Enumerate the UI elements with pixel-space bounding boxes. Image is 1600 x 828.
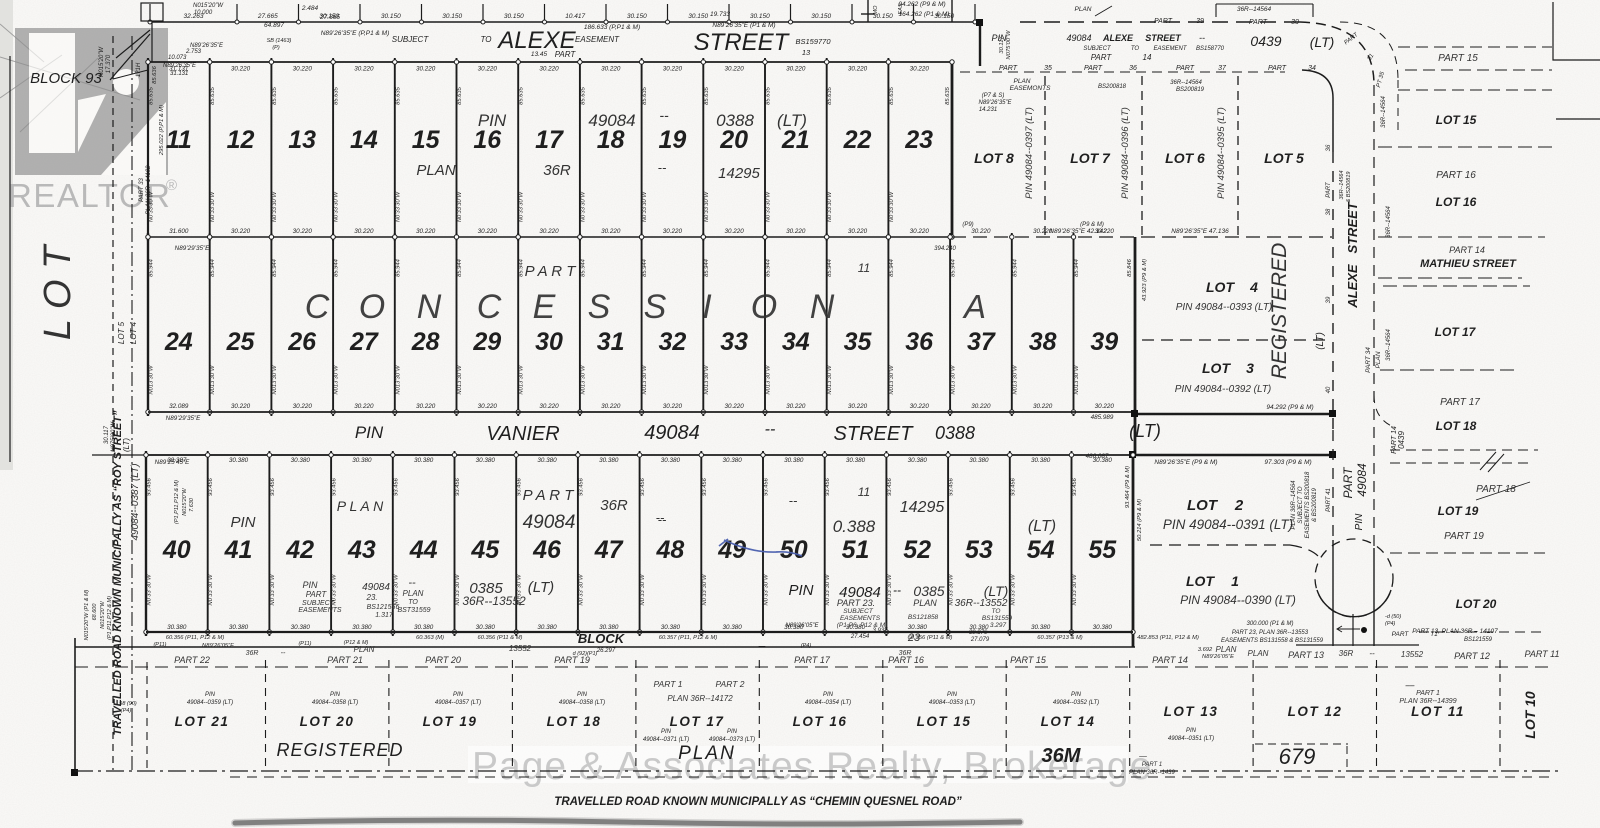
svg-text:11: 11	[166, 126, 192, 154]
svg-text:N89’29’35”E: N89’29’35”E	[175, 245, 210, 252]
svg-text:49084: 49084	[523, 512, 576, 533]
svg-text:LOT 5: LOT 5	[117, 321, 126, 344]
svg-text:60.356 (P11, P12 & M): 60.356 (P11, P12 & M)	[166, 635, 225, 641]
svg-text:20: 20	[719, 126, 748, 154]
svg-text:LOT 18: LOT 18	[547, 714, 602, 729]
svg-text:93.456: 93.456	[208, 477, 214, 496]
svg-text:EASEMONTS: EASEMONTS	[1010, 85, 1051, 92]
svg-text:30.220: 30.220	[231, 403, 251, 410]
svg-text:85.944: 85.944	[395, 259, 401, 277]
svg-text:LOT: LOT	[1206, 279, 1235, 295]
svg-text:30.150: 30.150	[750, 13, 770, 20]
svg-text:45: 45	[470, 536, 500, 564]
svg-text:37: 37	[967, 328, 996, 356]
svg-text:P A R T: P A R T	[523, 487, 576, 504]
svg-text:N0’33’30”W: N0’33’30”W	[457, 191, 463, 222]
svg-text:30.380: 30.380	[1031, 624, 1051, 631]
svg-text:PART 33: PART 33	[139, 177, 145, 201]
svg-text:N013’30”W: N013’30”W	[766, 365, 772, 395]
svg-text:64.897: 64.897	[264, 22, 284, 29]
svg-text:N013’30”W: N013’30”W	[1012, 365, 1018, 395]
svg-text:30.380: 30.380	[722, 457, 742, 464]
svg-text:30.380: 30.380	[969, 457, 989, 464]
svg-text:30.220: 30.220	[539, 403, 559, 410]
svg-text:30.380: 30.380	[1093, 624, 1113, 631]
svg-text:3: 3	[1246, 360, 1254, 376]
svg-text:LOT 4: LOT 4	[129, 321, 138, 344]
svg-text:N015’20”W: N015’20”W	[182, 487, 188, 515]
svg-text:30.220: 30.220	[971, 403, 991, 410]
svg-text:36R: 36R	[600, 497, 628, 514]
svg-text:PART 14: PART 14	[1449, 245, 1485, 255]
svg-text:PART: PART	[1341, 466, 1355, 499]
svg-text:N013’30”W: N013’30”W	[457, 365, 463, 395]
svg-text:30.220: 30.220	[601, 66, 621, 73]
svg-text:44: 44	[409, 536, 438, 564]
svg-text:10.417: 10.417	[565, 13, 585, 20]
svg-text:30.220: 30.220	[539, 228, 559, 235]
svg-text:PIN: PIN	[788, 582, 813, 599]
svg-text:30.150: 30.150	[627, 13, 647, 20]
svg-text:PLAN: PLAN	[1216, 645, 1237, 654]
svg-text:PART 11: PART 11	[1524, 649, 1559, 659]
svg-text:N0’33”30”W: N0’33”30”W	[1072, 574, 1078, 605]
svg-text:30.380: 30.380	[167, 624, 187, 631]
svg-text:––: ––	[758, 644, 766, 650]
svg-text:PART: PART	[306, 590, 328, 599]
svg-text:PART: PART	[1268, 65, 1287, 72]
svg-text:93.456: 93.456	[455, 477, 461, 496]
svg-text:PART: PART	[555, 50, 577, 59]
svg-text:PLAN: PLAN	[1075, 6, 1092, 13]
svg-text:36: 36	[1326, 144, 1332, 151]
svg-text:27: 27	[349, 328, 379, 356]
svg-text:PLAN 36R--14102: PLAN 36R--14102	[146, 165, 152, 215]
svg-text:N013’30”W: N013’30”W	[272, 365, 278, 395]
svg-text:36R: 36R	[899, 650, 912, 657]
svg-text:LOT 16: LOT 16	[793, 714, 848, 729]
svg-text:0385: 0385	[913, 583, 944, 599]
svg-text:BS121559: BS121559	[1464, 637, 1493, 643]
svg-text:30.220: 30.220	[478, 403, 498, 410]
svg-text:N0’33”30”W: N0’33”30”W	[640, 574, 646, 605]
svg-text:STREET: STREET	[1145, 33, 1182, 43]
svg-text:10.073: 10.073	[168, 55, 187, 61]
svg-text:N: N	[417, 288, 442, 326]
svg-text:18: 18	[597, 126, 625, 154]
svg-text:30.220: 30.220	[539, 66, 559, 73]
svg-text:27.665: 27.665	[319, 14, 340, 21]
svg-text:S: S	[588, 288, 611, 326]
svg-text:LOT 11: LOT 11	[1411, 704, 1465, 719]
svg-text:34: 34	[782, 328, 810, 356]
svg-text:30.220: 30.220	[910, 228, 930, 235]
svg-text:N013’30”W: N013’30”W	[827, 365, 833, 395]
svg-text:N013’30”W: N013’30”W	[149, 365, 155, 395]
svg-text:PIN: PIN	[727, 729, 738, 735]
svg-text:13: 13	[802, 48, 811, 57]
svg-text:30.220: 30.220	[416, 66, 436, 73]
svg-text:394.240: 394.240	[934, 246, 956, 252]
svg-text:PART 20: PART 20	[425, 655, 461, 665]
svg-text:LOT 5: LOT 5	[1264, 150, 1304, 166]
svg-text:36R--14564: 36R--14564	[1386, 205, 1392, 237]
svg-text:49084--0354 (LT): 49084--0354 (LT)	[805, 700, 851, 706]
svg-text:49084--0387 (LT): 49084--0387 (LT)	[130, 463, 141, 540]
svg-text:85.944: 85.944	[457, 259, 463, 277]
svg-text:43.923 (P9 & M): 43.923 (P9 & M)	[1142, 259, 1148, 301]
svg-text:TO: TO	[1131, 46, 1140, 52]
svg-text:LOT 13: LOT 13	[1164, 704, 1219, 719]
svg-text:PART 15: PART 15	[1010, 655, 1047, 665]
svg-text:30.220: 30.220	[601, 403, 621, 410]
svg-text:N075’20”W: N075’20”W	[111, 421, 117, 452]
svg-text:85.944: 85.944	[766, 259, 772, 277]
svg-text:LOT: LOT	[1202, 360, 1231, 376]
svg-text:EASEMENT: EASEMENT	[1153, 46, 1187, 52]
svg-text:11: 11	[858, 261, 870, 275]
svg-text:PIN: PIN	[230, 514, 255, 531]
svg-text:--: --	[789, 493, 798, 508]
svg-text:--: --	[656, 510, 665, 525]
svg-text:30.380: 30.380	[537, 624, 557, 631]
svg-text:--: --	[281, 650, 286, 657]
svg-text:N0’33”30”W: N0’33”30”W	[270, 574, 276, 605]
svg-text:(P11): (P11)	[153, 642, 166, 648]
svg-text:(LT): (LT)	[1129, 421, 1161, 441]
svg-text:I: I	[702, 288, 712, 326]
svg-text:19: 19	[658, 126, 686, 154]
svg-text:30.220: 30.220	[231, 228, 251, 235]
svg-text:N89’26’35”E 47.136: N89’26’35”E 47.136	[1171, 228, 1229, 235]
svg-text:VANIER: VANIER	[486, 423, 559, 445]
svg-text:36R--14564: 36R--14564	[1386, 328, 1392, 360]
svg-text:30.387: 30.387	[167, 457, 187, 464]
svg-text:36R--14564: 36R--14564	[1170, 80, 1202, 86]
svg-text:30.117: 30.117	[104, 425, 110, 444]
svg-text:30.150: 30.150	[811, 13, 831, 20]
svg-text:P L A N: P L A N	[337, 498, 384, 514]
svg-text:PART 23.: PART 23.	[837, 598, 875, 608]
svg-text:30.150: 30.150	[442, 13, 462, 20]
svg-text:(LT): (LT)	[1028, 518, 1056, 535]
svg-text:21: 21	[781, 126, 810, 154]
svg-text:BS131559: BS131559	[982, 615, 1013, 622]
svg-text:30.380: 30.380	[599, 457, 619, 464]
svg-text:2.753: 2.753	[185, 49, 202, 55]
svg-text:30.380: 30.380	[229, 624, 249, 631]
svg-text:14295: 14295	[900, 499, 945, 516]
svg-text:32.089: 32.089	[169, 403, 189, 410]
svg-text:LOT 19: LOT 19	[423, 714, 478, 729]
svg-text:39: 39	[1326, 296, 1332, 303]
svg-text:PLAN 36R--14399: PLAN 36R--14399	[1399, 698, 1456, 705]
svg-text:30.220: 30.220	[786, 403, 806, 410]
svg-text:N0’33’30”W: N0’33’30”W	[889, 191, 895, 222]
svg-text:EASEMENT: EASEMENT	[575, 35, 620, 44]
svg-text:30.380: 30.380	[476, 457, 496, 464]
svg-text:PIN: PIN	[302, 580, 318, 590]
svg-text:1?1H: 1?1H	[136, 62, 142, 77]
svg-text:49084: 49084	[644, 422, 700, 444]
svg-text:30.220: 30.220	[910, 66, 930, 73]
svg-text:30.380: 30.380	[908, 457, 928, 464]
svg-text:85.944: 85.944	[1074, 259, 1080, 277]
svg-text:30.380: 30.380	[537, 457, 557, 464]
svg-text:30.380: 30.380	[352, 457, 372, 464]
svg-text:30.220: 30.220	[354, 403, 374, 410]
svg-text:––: ––	[1138, 753, 1147, 760]
svg-text:PIN 49084--0393 (LT): PIN 49084--0393 (LT)	[1176, 302, 1273, 313]
svg-text:(LT): (LT)	[122, 438, 131, 452]
svg-text:S: S	[644, 288, 667, 326]
svg-text:PIN: PIN	[355, 423, 384, 442]
svg-text:PART: PART	[1154, 18, 1173, 25]
svg-text:30.220: 30.220	[478, 228, 498, 235]
svg-text:39: 39	[1196, 18, 1204, 25]
svg-text:PART 14: PART 14	[1152, 655, 1188, 665]
svg-text:30.220: 30.220	[724, 66, 744, 73]
svg-text:SUBJECT: SUBJECT	[302, 600, 335, 607]
svg-text:4: 4	[1249, 279, 1258, 295]
svg-text:85.944: 85.944	[889, 259, 895, 277]
svg-text:30.380: 30.380	[661, 624, 681, 631]
svg-text:30.380: 30.380	[476, 624, 496, 631]
svg-text:41: 41	[224, 536, 253, 564]
svg-text:30.380: 30.380	[414, 624, 434, 631]
svg-text:93.456: 93.456	[949, 477, 955, 496]
svg-text:PART 23, PLAN 36R--13553: PART 23, PLAN 36R--13553	[1232, 630, 1309, 636]
svg-text:PLAN: PLAN	[403, 589, 424, 598]
svg-text:300.000 (P1 & M): 300.000 (P1 & M)	[1246, 621, 1293, 627]
svg-text:PLAN: PLAN	[913, 598, 937, 608]
svg-text:N0’33’30”W: N0’33’30”W	[272, 191, 278, 222]
svg-text:679: 679	[1279, 744, 1316, 769]
svg-text:30.220: 30.220	[663, 403, 683, 410]
svg-text:49: 49	[717, 536, 746, 564]
svg-text:30.220: 30.220	[1033, 403, 1053, 410]
svg-text:28: 28	[411, 328, 440, 356]
svg-text:24: 24	[164, 328, 193, 356]
svg-text:PIN 49084--0391 (LT): PIN 49084--0391 (LT)	[1163, 517, 1293, 532]
svg-text:SB (1463): SB (1463)	[267, 38, 292, 44]
svg-text:93.456: 93.456	[1072, 477, 1078, 496]
svg-text:--: --	[658, 160, 667, 175]
svg-text:N0’33’30”W: N0’33’30”W	[519, 191, 525, 222]
svg-text:TRAVELLED ROAD KNOWN MUNIC: TRAVELLED ROAD KNOWN MUNICIPALLY AS “CHE…	[554, 796, 962, 808]
svg-text:85.944: 85.944	[334, 259, 340, 277]
svg-text:12: 12	[227, 126, 255, 154]
svg-text:49084: 49084	[1355, 463, 1369, 497]
svg-text:PIN: PIN	[661, 729, 672, 735]
svg-text:N0’33”30”W: N0’33”30”W	[578, 574, 584, 605]
svg-text:--: --	[765, 421, 776, 438]
svg-text:PART 13, PLAN 36R – 1410: PART 13, PLAN 36R – 14107	[1412, 628, 1498, 635]
svg-text:36: 36	[1129, 65, 1137, 72]
svg-text:PART 21: PART 21	[327, 655, 363, 665]
svg-text:PART 1: PART 1	[1416, 690, 1440, 697]
svg-text:N0’33’30”W: N0’33’30”W	[580, 191, 586, 222]
svg-text:93.456: 93.456	[393, 477, 399, 496]
svg-text:O: O	[751, 288, 777, 326]
svg-text:36R: 36R	[246, 650, 259, 657]
svg-text:L O T: L O T	[37, 243, 79, 340]
svg-text:93.456: 93.456	[825, 477, 831, 496]
svg-text:93.456: 93.456	[578, 477, 584, 496]
svg-text:93.456: 93.456	[270, 477, 276, 496]
svg-text:N89’26’35”E (P,P1 & M): N89’26’35”E (P,P1 & M)	[321, 30, 390, 37]
svg-text:30.220: 30.220	[354, 228, 374, 235]
svg-text:30.380: 30.380	[599, 624, 619, 631]
svg-text:(P7 & S): (P7 & S)	[982, 93, 1005, 99]
svg-text:85.944: 85.944	[642, 259, 648, 277]
svg-text:N0’33”30”W: N0’33”30”W	[455, 574, 461, 605]
svg-text:PART 13: PART 13	[1288, 650, 1324, 660]
svg-text:LOT 20: LOT 20	[300, 714, 355, 729]
svg-text:30.150: 30.150	[688, 13, 708, 20]
svg-text:BS200818: BS200818	[1098, 84, 1127, 90]
svg-text:N0’33’30”W: N0’33’30”W	[642, 191, 648, 222]
svg-text:PLAN: PLAN	[416, 162, 455, 179]
svg-text:30.220: 30.220	[601, 228, 621, 235]
svg-text:30.380: 30.380	[1031, 457, 1051, 464]
svg-text:PIN: PIN	[823, 692, 834, 698]
svg-text:PART 41: PART 41	[1326, 488, 1332, 512]
svg-text:LOT 15: LOT 15	[1436, 113, 1477, 127]
svg-text:85.635: 85.635	[766, 86, 772, 105]
svg-text:85.846: 85.846	[1127, 258, 1133, 277]
svg-text:2: 2	[1234, 497, 1244, 514]
svg-text:N0’33”30”W: N0’33”30”W	[1010, 574, 1016, 605]
svg-text:37: 37	[1218, 65, 1227, 72]
svg-text:30.380: 30.380	[722, 624, 742, 631]
svg-text:PIN 49084--0392 (LT): PIN 49084--0392 (LT)	[1175, 384, 1272, 395]
svg-text:(P1,P11,P12 & M): (P1,P11,P12 & M)	[107, 596, 113, 640]
svg-text:PART: PART	[1392, 631, 1410, 638]
svg-text:30.220: 30.220	[971, 228, 991, 235]
svg-text:MO: MO	[873, 5, 879, 15]
svg-text:97.303 (P9 & M): 97.303 (P9 & M)	[1264, 459, 1311, 466]
svg-text:BS121858: BS121858	[908, 614, 939, 621]
svg-text:49084--0359 (LT): 49084--0359 (LT)	[187, 700, 233, 706]
svg-text:30.220: 30.220	[848, 66, 868, 73]
svg-text:13552: 13552	[509, 644, 532, 653]
svg-text:PIN: PIN	[1071, 692, 1082, 698]
svg-text:94.262 (P9 & M): 94.262 (P9 & M)	[898, 1, 945, 8]
svg-text:60.363 (M): 60.363 (M)	[416, 635, 444, 641]
svg-text:30: 30	[1291, 19, 1299, 26]
svg-text:23: 23	[904, 126, 933, 154]
svg-text:14: 14	[1143, 53, 1152, 62]
svg-text:PART 1: PART 1	[1142, 762, 1162, 768]
svg-text:(P4): (P4)	[801, 643, 812, 649]
svg-text:STREET: STREET	[834, 423, 915, 445]
svg-text:C: C	[305, 288, 330, 326]
svg-text:PIN 49084--0395 (LT): PIN 49084--0395 (LT)	[1216, 107, 1227, 199]
svg-text:27.454: 27.454	[850, 634, 870, 640]
svg-text:60.357 (P11, P12 & M): 60.357 (P11, P12 & M)	[659, 635, 718, 641]
svg-text:485.989: 485.989	[1091, 414, 1114, 421]
svg-text:A: A	[962, 288, 986, 325]
svg-text:EASEMENTS: EASEMENTS	[298, 607, 342, 614]
svg-text:TO: TO	[408, 599, 418, 606]
svg-text:14: 14	[350, 126, 378, 154]
svg-text:85.635: 85.635	[272, 86, 278, 105]
svg-text:--: --	[1199, 33, 1205, 43]
svg-text:C: C	[477, 288, 502, 326]
svg-text:49084: 49084	[1066, 33, 1091, 43]
svg-text:36R: 36R	[543, 162, 571, 179]
svg-text:60.356 (P11 & M): 60.356 (P11 & M)	[907, 635, 952, 641]
svg-text:33: 33	[720, 328, 748, 356]
svg-text:49084--0358 (LT): 49084--0358 (LT)	[312, 700, 358, 706]
svg-text:13.45: 13.45	[531, 51, 548, 58]
svg-text:3.692: 3.692	[1198, 647, 1213, 653]
svg-text:2.484: 2.484	[301, 5, 319, 12]
svg-text:N0’33”30”W: N0’33”30”W	[825, 574, 831, 605]
svg-text:30.380: 30.380	[661, 457, 681, 464]
svg-text:––: ––	[1405, 681, 1415, 690]
svg-text:N075’00”W: N075’00”W	[1006, 30, 1012, 60]
svg-text:85.944: 85.944	[951, 259, 957, 277]
svg-text:51: 51	[842, 536, 870, 564]
svg-text:0.388: 0.388	[833, 517, 876, 536]
svg-text:35: 35	[844, 328, 873, 356]
svg-text:48: 48	[655, 536, 684, 564]
svg-text:N0’33’30”W: N0’33’30”W	[827, 191, 833, 222]
svg-text:30.380: 30.380	[352, 624, 372, 631]
svg-text:30.220: 30.220	[1095, 403, 1115, 410]
svg-text:7.630: 7.630	[189, 497, 195, 512]
svg-text:0388: 0388	[935, 423, 975, 443]
svg-text:BS121556: BS121556	[367, 604, 400, 611]
svg-text:PLAN: PLAN	[1014, 78, 1031, 85]
svg-text:30.220: 30.220	[231, 66, 251, 73]
svg-text:42: 42	[285, 536, 314, 564]
svg-text:30.220: 30.220	[354, 66, 374, 73]
svg-text:N89’29’35”E: N89’29’35”E	[166, 415, 201, 422]
svg-text:PART: PART	[999, 65, 1018, 72]
svg-text:30.380: 30.380	[1093, 457, 1113, 464]
svg-text:40: 40	[1326, 386, 1332, 393]
svg-text:39: 39	[1090, 328, 1118, 356]
svg-text:26.297: 26.297	[596, 648, 616, 654]
svg-text:--: --	[659, 107, 669, 123]
svg-text:EASEMENTS BS131558 & BS1315: EASEMENTS BS131558 & BS131559	[1221, 638, 1324, 644]
svg-text:30.220: 30.220	[1095, 228, 1115, 235]
svg-text:LOT 20: LOT 20	[1456, 597, 1497, 611]
svg-text:PART 2: PART 2	[716, 679, 745, 689]
svg-text:85.635: 85.635	[210, 86, 216, 105]
svg-text:10.000: 10.000	[194, 10, 213, 16]
svg-text:13: 13	[288, 126, 316, 154]
svg-text:N015’20”W: N015’20”W	[100, 600, 106, 628]
svg-text:54: 54	[1027, 536, 1055, 564]
svg-text:85.636: 85.636	[152, 65, 158, 84]
svg-text:85.635: 85.635	[580, 86, 586, 105]
svg-text:& BS200819: & BS200819	[1346, 172, 1352, 203]
svg-text:LOT 19: LOT 19	[1438, 504, 1479, 518]
svg-text:98 (90): 98 (90)	[119, 701, 137, 707]
svg-text:85.944: 85.944	[827, 259, 833, 277]
svg-text:TO: TO	[481, 35, 492, 44]
svg-text:BS159770: BS159770	[795, 37, 831, 46]
svg-text:N0’33’30”W: N0’33’30”W	[766, 191, 772, 222]
svg-text:PART 12: PART 12	[1454, 651, 1490, 661]
svg-text:93.456: 93.456	[147, 477, 153, 496]
svg-text:94.292 (P9 & M): 94.292 (P9 & M)	[1266, 404, 1313, 411]
svg-text:PART: PART	[1326, 181, 1332, 198]
